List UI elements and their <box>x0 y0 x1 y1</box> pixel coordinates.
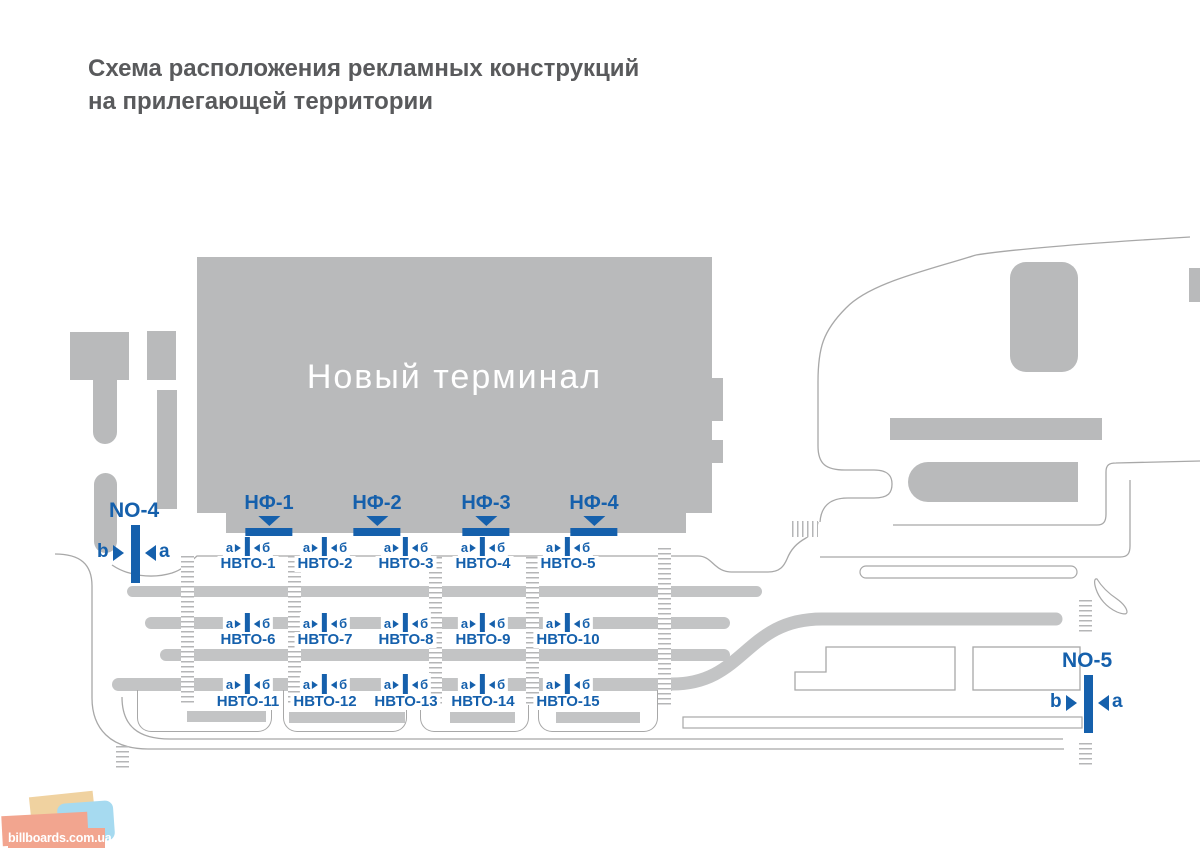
crosswalk <box>1079 743 1092 768</box>
arrow-right-icon <box>235 620 241 628</box>
facade-sign-board <box>353 528 400 536</box>
facade-sign: НФ-2 <box>352 493 401 536</box>
side-a-label: а <box>384 617 391 630</box>
crosswalk <box>792 521 818 537</box>
arrow-down-icon <box>258 516 280 526</box>
billboards-logo: billboards.com.ua <box>0 778 125 848</box>
sign-post <box>565 674 570 695</box>
facade-sign: НФ-1 <box>244 493 293 536</box>
ground-sign-label: НВТО-10 <box>533 632 602 648</box>
side-b-label: б <box>262 617 270 630</box>
arrow-left-icon <box>331 620 337 628</box>
sign-post <box>322 674 327 695</box>
arrow-left-icon <box>331 544 337 552</box>
arrow-right-icon <box>393 681 399 689</box>
sign-post <box>403 674 408 695</box>
arrow-left-icon <box>574 620 580 628</box>
arrow-left-icon <box>412 544 418 552</box>
crosswalk <box>658 548 671 707</box>
ground-sign-label: НВТО-1 <box>218 556 279 572</box>
side-a-label: а <box>461 617 468 630</box>
traffic-island <box>683 717 1082 728</box>
side-b-label: б <box>420 678 428 691</box>
arrow-right-icon <box>312 544 318 552</box>
road-outline <box>976 237 1190 255</box>
arrow-right-icon <box>470 544 476 552</box>
side-a-label: а <box>461 541 468 554</box>
side-b-label: б <box>497 541 505 554</box>
arrow-right-icon <box>113 545 124 561</box>
side-b-label: б <box>497 617 505 630</box>
sign-post <box>131 525 140 583</box>
parking-stall-bar <box>289 712 405 723</box>
facade-sign: НФ-3 <box>461 493 510 536</box>
facade-sign: НФ-4 <box>569 493 618 536</box>
arrow-left-icon <box>254 544 260 552</box>
road-outline <box>818 255 976 522</box>
arrow-right-icon <box>393 620 399 628</box>
outlined-building <box>795 647 955 690</box>
ground-sign-label: НВТО-7 <box>295 632 356 648</box>
side-b-label: б <box>582 541 590 554</box>
side-a-label: а <box>546 617 553 630</box>
arrow-right-icon <box>470 620 476 628</box>
side-b-label: b <box>1050 691 1062 713</box>
arrow-left-icon <box>254 620 260 628</box>
arrow-left-icon <box>412 620 418 628</box>
ground-sign-label: НВТО-2 <box>295 556 356 572</box>
traffic-island <box>1095 579 1127 614</box>
ground-sign-label: НВТО-3 <box>376 556 437 572</box>
facade-sign-label: НФ-2 <box>352 493 401 514</box>
ground-sign-label: НВТО-12 <box>290 694 359 710</box>
ground-sign-label: НВТО-8 <box>376 632 437 648</box>
facade-sign-board <box>462 528 509 536</box>
ground-sign-label: НВТО-11 <box>214 694 282 710</box>
side-a-label: а <box>226 678 233 691</box>
facade-sign-label: НФ-3 <box>461 493 510 514</box>
road-outline <box>820 480 1130 557</box>
side-b-label: б <box>339 541 347 554</box>
crosswalk <box>1079 600 1092 633</box>
side-b-label: б <box>420 541 428 554</box>
ground-sign-label: НВТО-5 <box>538 556 599 572</box>
side-b-label: б <box>582 617 590 630</box>
side-a-label: а <box>226 617 233 630</box>
side-a-label: а <box>303 617 310 630</box>
ground-sign-label: НВТО-6 <box>218 632 279 648</box>
arrow-right-icon <box>235 544 241 552</box>
side-a-label: a <box>159 541 170 563</box>
arrow-left-icon <box>489 544 495 552</box>
arrow-down-icon <box>475 516 497 526</box>
parking-stall-bar <box>187 711 266 722</box>
sign-post <box>1084 675 1093 733</box>
arrow-left-icon <box>1098 695 1109 711</box>
arrow-right-icon <box>1066 695 1077 711</box>
side-b-label: б <box>339 678 347 691</box>
sign-post <box>245 674 250 695</box>
arrow-left-icon <box>254 681 260 689</box>
arrow-left-icon <box>145 545 156 561</box>
arrow-left-icon <box>331 681 337 689</box>
facade-sign-label: НФ-4 <box>569 493 618 514</box>
side-b-label: б <box>420 617 428 630</box>
side-a-label: а <box>226 541 233 554</box>
side-b-label: b <box>97 541 109 563</box>
side-a-label: а <box>384 678 391 691</box>
side-b-label: б <box>262 541 270 554</box>
arrow-right-icon <box>555 544 561 552</box>
watermark-text: billboards.com.ua <box>8 828 105 848</box>
arrow-right-icon <box>312 681 318 689</box>
facade-sign-label: НФ-1 <box>244 493 293 514</box>
ground-sign-label: НВТО-4 <box>453 556 514 572</box>
roadside-sign-label: NO-4 <box>109 499 159 523</box>
parking-stall-bar <box>450 712 515 723</box>
arrow-right-icon <box>470 681 476 689</box>
ground-sign-label: НВТО-9 <box>453 632 514 648</box>
arrow-right-icon <box>235 681 241 689</box>
facade-sign-board <box>570 528 617 536</box>
side-b-label: б <box>262 678 270 691</box>
side-b-label: б <box>582 678 590 691</box>
arrow-right-icon <box>393 544 399 552</box>
side-a-label: a <box>1112 691 1123 713</box>
crosswalk <box>116 746 129 769</box>
traffic-island <box>860 566 1077 578</box>
ground-sign-label: НВТО-14 <box>448 694 517 710</box>
arrow-left-icon <box>489 681 495 689</box>
sign-post <box>480 674 485 695</box>
ground-sign-label: НВТО-13 <box>371 694 440 710</box>
arrow-down-icon <box>583 516 605 526</box>
side-a-label: а <box>461 678 468 691</box>
arrow-down-icon <box>366 516 388 526</box>
arrow-left-icon <box>489 620 495 628</box>
arrow-left-icon <box>412 681 418 689</box>
ground-sign-label: НВТО-15 <box>533 694 602 710</box>
side-a-label: а <box>303 541 310 554</box>
side-b-label: б <box>339 617 347 630</box>
arrow-left-icon <box>574 544 580 552</box>
arrow-left-icon <box>574 681 580 689</box>
side-b-label: б <box>497 678 505 691</box>
road-outline <box>893 461 1200 525</box>
roadside-sign: NO-5ba <box>1048 649 1138 739</box>
side-a-label: а <box>546 678 553 691</box>
roadside-sign-label: NO-5 <box>1062 649 1112 673</box>
parking-stall-bar <box>556 712 640 723</box>
facade-sign-board <box>245 528 292 536</box>
roadside-sign: NO-4ba <box>95 499 185 589</box>
side-a-label: а <box>546 541 553 554</box>
site-plan-map: Схема расположения рекламных конструкций… <box>0 0 1200 848</box>
side-a-label: а <box>384 541 391 554</box>
arrow-right-icon <box>555 620 561 628</box>
arrow-right-icon <box>312 620 318 628</box>
arrow-right-icon <box>555 681 561 689</box>
side-a-label: а <box>303 678 310 691</box>
